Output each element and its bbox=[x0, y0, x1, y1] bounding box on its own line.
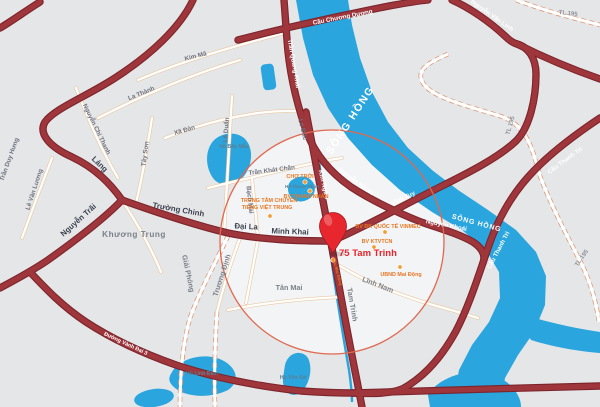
map-svg: Kim Mã La Thành Nguyễn Chí Thanh Trần Du… bbox=[0, 0, 600, 407]
poi-label-bv-ktvtcn: BV KTVTCN bbox=[362, 239, 393, 245]
poi-dot bbox=[383, 230, 387, 234]
poi-label-trung-tam-line2: TIẾNG VIỆT TRUNG bbox=[242, 203, 293, 211]
road-label-dai-la: Đại La bbox=[234, 221, 259, 231]
poi-label-ubnd-mai-dong: UBND Mai Động bbox=[380, 272, 421, 278]
road-label-tan-mai: Tân Mai bbox=[276, 283, 303, 292]
map-canvas[interactable]: Kim Mã La Thành Nguyễn Chí Thanh Trần Du… bbox=[0, 0, 600, 407]
marker-label: 75 Tam Trinh bbox=[339, 248, 397, 259]
poi-dot bbox=[308, 189, 312, 193]
poi-label-cho-troi: CHỢ TRỜI bbox=[286, 172, 314, 180]
district-label-khuong-trung: Khương Trung bbox=[102, 230, 166, 239]
poi-dot bbox=[268, 214, 272, 218]
water-label-ho-bay-mau: Hồ Bảy Mẫu bbox=[219, 143, 249, 150]
road-label-minh-khai: Minh Khai bbox=[271, 226, 309, 236]
poi-label-bv-vinmec: BV ĐK QUỐC TẾ VINMEC bbox=[355, 223, 420, 230]
poi-dot bbox=[398, 265, 402, 269]
water-label-ho-yen-so: Hồ Yên Sở bbox=[280, 375, 307, 381]
water-label-ho-thanh-nhan: Hồ Thanh Nhàn bbox=[285, 184, 319, 189]
water-label-ho-linh-dam: Hồ Linh Đàm bbox=[186, 371, 218, 377]
poi-label-trung-tam-line1: TRUNG TÂM CHUYÊN bbox=[241, 196, 298, 204]
